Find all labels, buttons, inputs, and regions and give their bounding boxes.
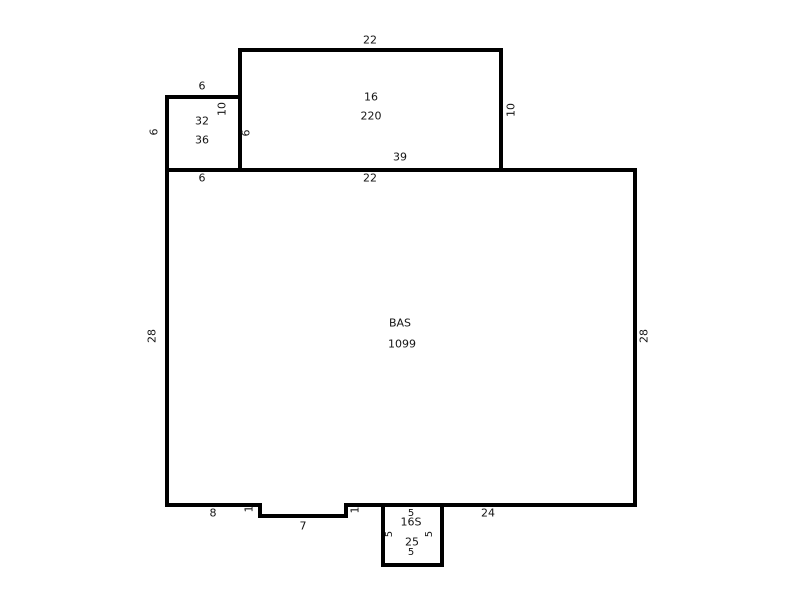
dim-notch-left: 1 bbox=[244, 506, 255, 513]
dim-addition-bottom: 6 bbox=[199, 173, 206, 184]
dim-stoop-right: 5 bbox=[425, 531, 435, 537]
porch-code: 16 bbox=[364, 92, 378, 103]
addition-code: 32 bbox=[195, 116, 209, 127]
dim-porch-left: 10 bbox=[217, 102, 228, 116]
dim-bas-right: 28 bbox=[639, 329, 650, 343]
dim-notch-right: 1 bbox=[350, 507, 361, 514]
property-sketch: 22 16 220 10 10 6 32 36 6 6 6 39 22 BAS … bbox=[0, 0, 800, 600]
dim-notch-bottom: 7 bbox=[300, 521, 307, 532]
addition-area: 36 bbox=[195, 135, 209, 146]
porch-area: 220 bbox=[361, 111, 382, 122]
dim-addition-right: 6 bbox=[241, 130, 252, 137]
bas-code: BAS bbox=[389, 318, 411, 329]
dim-bas-top-under-porch: 22 bbox=[363, 173, 377, 184]
dim-bas-bottom-right: 24 bbox=[481, 508, 495, 519]
bas-area: 1099 bbox=[388, 339, 416, 350]
dim-bas-left: 28 bbox=[147, 329, 158, 343]
dim-bas-top: 39 bbox=[393, 152, 407, 163]
dim-bas-bottom-left: 8 bbox=[210, 508, 217, 519]
dim-porch-right: 10 bbox=[506, 103, 517, 117]
stoop-area: 25 bbox=[405, 537, 419, 548]
dim-addition-left: 6 bbox=[149, 129, 160, 136]
stoop-code: 16S bbox=[401, 517, 422, 528]
dim-stoop-bottom: 5 bbox=[408, 548, 414, 558]
dim-stoop-left: 5 bbox=[385, 531, 395, 537]
dim-addition-top: 6 bbox=[199, 81, 206, 92]
dim-porch-top: 22 bbox=[363, 35, 377, 46]
sketch-outlines bbox=[0, 0, 800, 600]
